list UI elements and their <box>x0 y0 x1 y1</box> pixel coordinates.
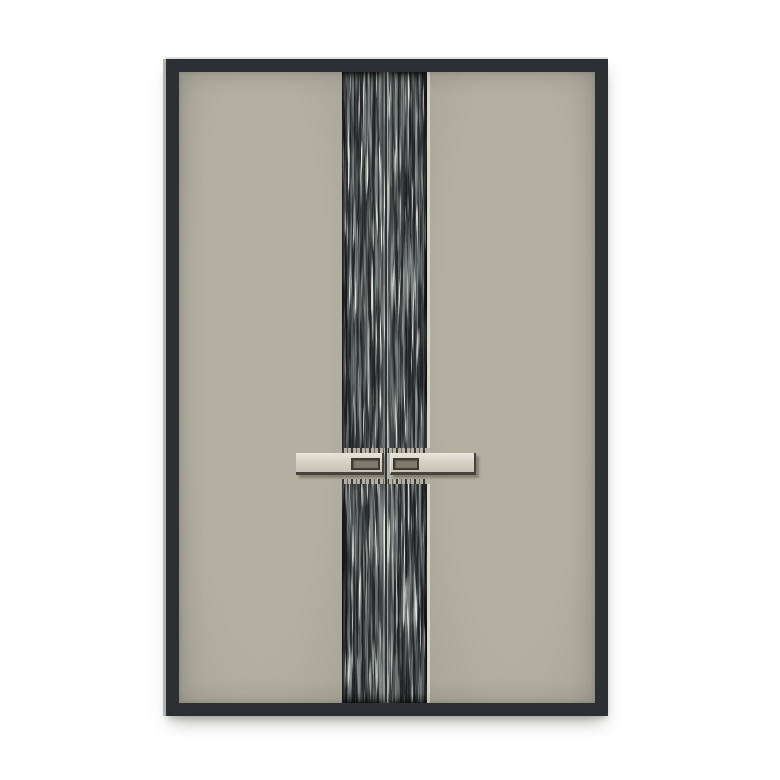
double-door-assembly <box>166 59 608 716</box>
panel-edge-highlight <box>427 72 430 703</box>
product-photo-background <box>0 0 780 780</box>
left-door-panel <box>179 72 342 703</box>
right-door-panel <box>430 72 595 703</box>
left-door-handle <box>296 453 384 475</box>
door-meeting-gap-line <box>385 72 387 703</box>
right-handle-grip-plate <box>393 458 419 470</box>
right-door-handle <box>390 453 476 475</box>
door-frame-interior <box>179 72 595 703</box>
left-handle-grip-plate <box>351 458 380 470</box>
